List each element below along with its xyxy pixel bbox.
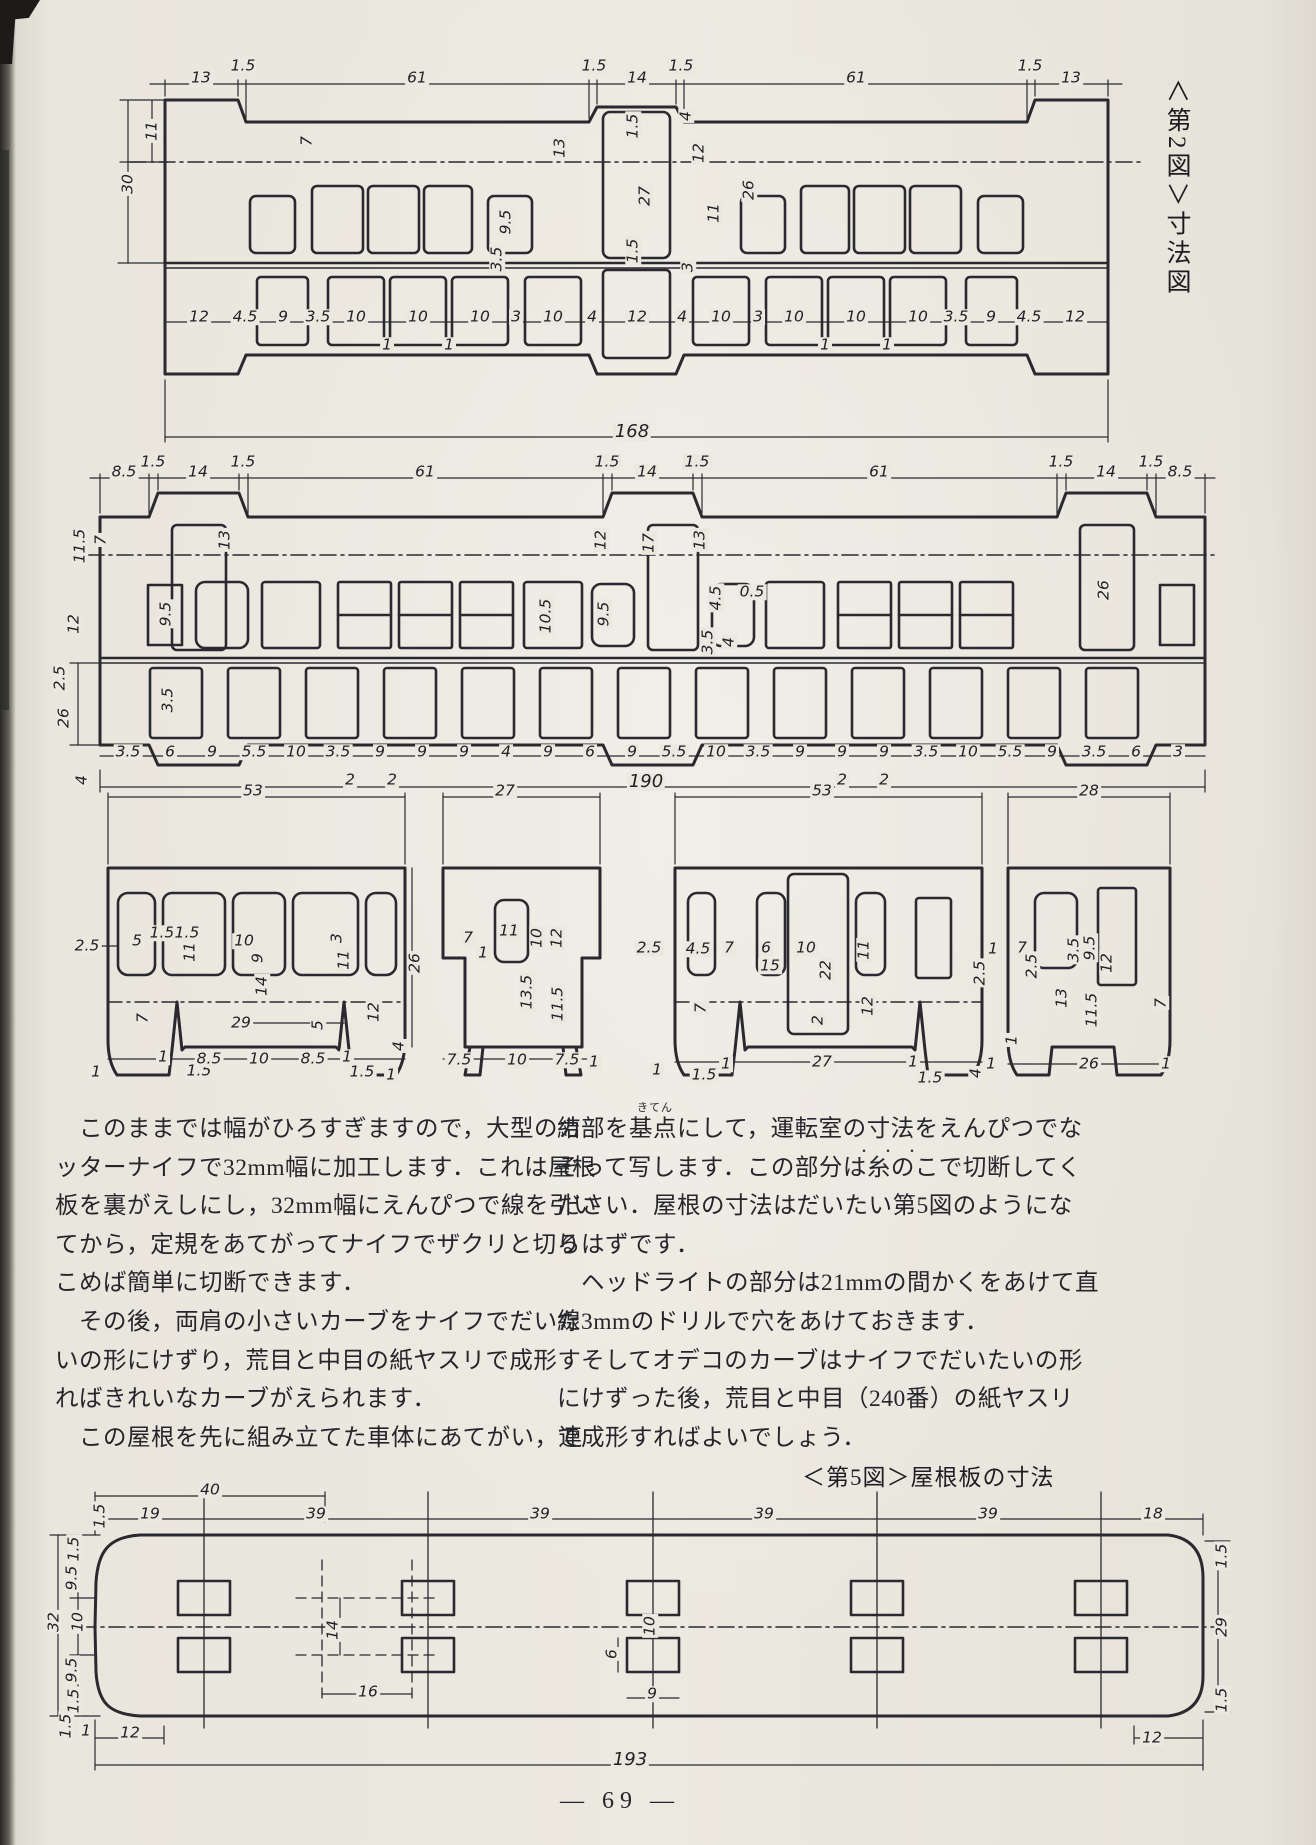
text-line: 板を裏がえしにし，32mm幅にえんぴつで線を引い [55, 1187, 555, 1226]
text-line: にけずった後，荒目と中目（240番）の紙ヤスリ [557, 1380, 1057, 1419]
text-line: ればきれいなカーブがえられます． [55, 1380, 555, 1419]
text-line: るはずです． [557, 1226, 1057, 1265]
text-line: ヘッドライトの部分は21mmの間かくをあけて直 [557, 1264, 1057, 1303]
text-line: ぞって写します．この部分は糸のこで切断してく [557, 1149, 1057, 1188]
text-line: ッターナイフで32mm幅に加工します．これは屋根 [55, 1149, 555, 1188]
figure5-caption: ＜第5図＞屋根板の寸法 [802, 1458, 1055, 1492]
text-line: ださい．屋根の寸法はだいたい第5図のようにな [557, 1187, 1057, 1226]
page-number: — 69 — [470, 1788, 770, 1815]
text-line: 線3mmのドリルで穴をあけておきます． [557, 1303, 1057, 1342]
text-line: こめば簡単に切断できます． [55, 1264, 555, 1303]
text-line: てから，定規をあてがってナイフでザクリと切り [55, 1226, 555, 1265]
text-line: この屋根を先に組み立てた車体にあてがい，連 [55, 1419, 555, 1458]
text-line: で成形すればよいでしょう． [557, 1419, 1057, 1458]
body-text-left-column: このままでは幅がひろすぎますので，大型のカッターナイフで32mm幅に加工します．… [55, 1110, 555, 1457]
figure2-caption: ＜第2図＞寸法図 [1158, 78, 1194, 298]
text-line: その後，両肩の小さいカーブをナイフでだいた [55, 1303, 555, 1342]
technical-drawing-linework [0, 0, 1316, 1845]
text-line: そしてオデコのカーブはナイフでだいたいの形 [557, 1342, 1057, 1381]
emphasis-dots: ・・・ [858, 1142, 930, 1159]
body-text-right-column: 結部を基点にして，運転室の寸法をえんぴつでなぞって写します．この部分は糸のこで切… [557, 1110, 1057, 1457]
text-line: このままでは幅がひろすぎますので，大型のカ [55, 1110, 555, 1149]
text-line: 結部を基点にして，運転室の寸法をえんぴつでな [557, 1110, 1057, 1149]
furigana-kiten: きてん [629, 1099, 681, 1115]
text-line: いの形にけずり，荒目と中目の紙ヤスリで成形す [55, 1342, 555, 1381]
magazine-page: { "page": {"footer": "— 69 —", "ink": "#… [0, 0, 1316, 1845]
